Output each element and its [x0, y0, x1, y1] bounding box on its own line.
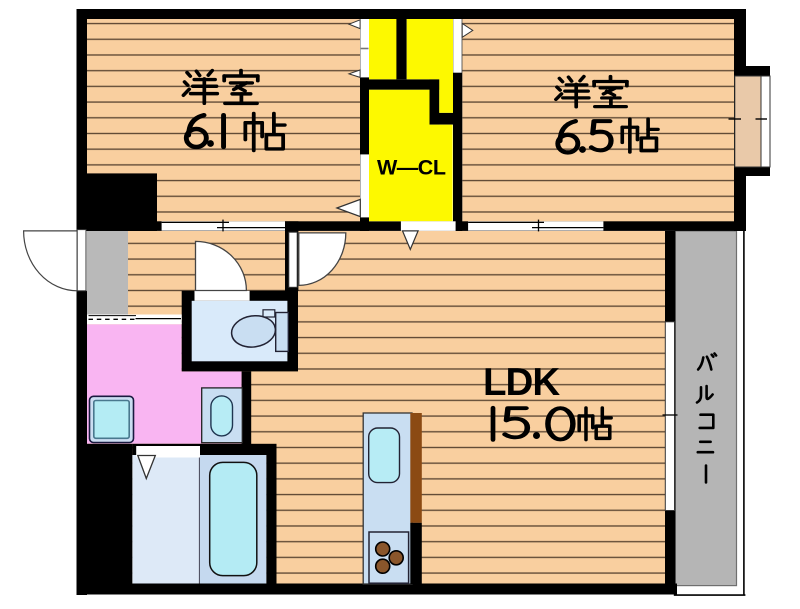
svg-text:LDK: LDK [483, 361, 560, 404]
svg-text:W—CL: W—CL [377, 156, 446, 180]
